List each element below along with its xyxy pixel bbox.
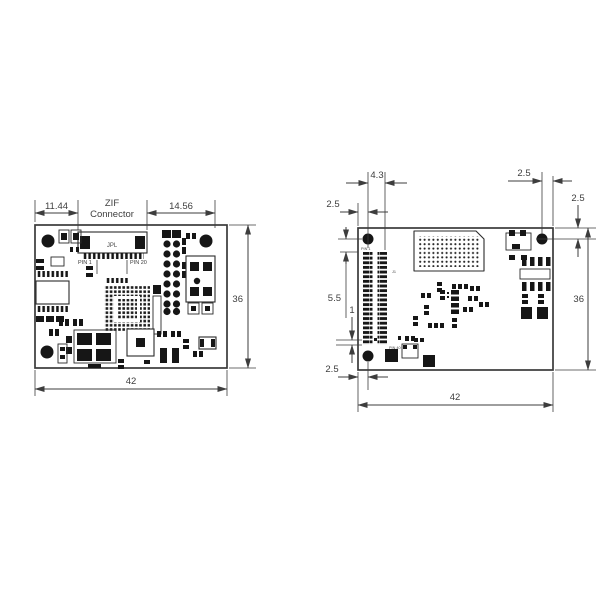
mounting-hole bbox=[200, 235, 213, 248]
dim-2-5-top-left: 2.5 bbox=[326, 199, 339, 210]
pin20-label: PIN 20 bbox=[130, 260, 147, 266]
dim-14-56: 14.56 bbox=[169, 201, 193, 212]
dim-2-5-far-right: 2.5 bbox=[571, 193, 584, 204]
pin1-label-bottom: PIN 1 bbox=[361, 247, 371, 251]
dim-36-right-view: 36 bbox=[573, 294, 584, 305]
pcb-drawing-page: JPL PIN 1 PIN 20 bbox=[0, 0, 600, 600]
dim-2-5-top-right: 2.5 bbox=[517, 168, 530, 179]
mounting-hole bbox=[363, 351, 374, 362]
zif-label-line2: Connector bbox=[90, 209, 134, 220]
dim-2-5-bottom-left: 2.5 bbox=[325, 364, 338, 375]
right-board-view: PIN 1 PIN 40 J1 bbox=[325, 168, 596, 412]
mounting-hole bbox=[42, 235, 55, 248]
qfn-chip bbox=[127, 329, 154, 356]
dim-36-left-view: 36 bbox=[232, 294, 243, 305]
connector-ref-label: JPL bbox=[107, 243, 118, 249]
connector-pin-row bbox=[82, 253, 144, 259]
mounting-hole bbox=[41, 346, 54, 359]
dim-42-right-view: 42 bbox=[450, 392, 461, 403]
pin1-label: PIN 1 bbox=[78, 260, 92, 266]
bga-footprint bbox=[414, 231, 484, 271]
dim-1: 1 bbox=[349, 305, 354, 316]
dim-42-left-view: 42 bbox=[126, 376, 137, 387]
left-board-view: JPL PIN 1 PIN 20 bbox=[35, 198, 256, 396]
zif-label-line1: ZIF bbox=[105, 198, 119, 209]
connector-ref-bottom: J1 bbox=[392, 270, 396, 274]
dim-4-3: 4.3 bbox=[370, 170, 383, 181]
qfp-footprint bbox=[104, 278, 150, 332]
dim-5-5: 5.5 bbox=[328, 293, 341, 304]
dim-11-44: 11.44 bbox=[45, 201, 68, 212]
pcb-dimension-drawing: JPL PIN 1 PIN 20 bbox=[0, 0, 600, 600]
